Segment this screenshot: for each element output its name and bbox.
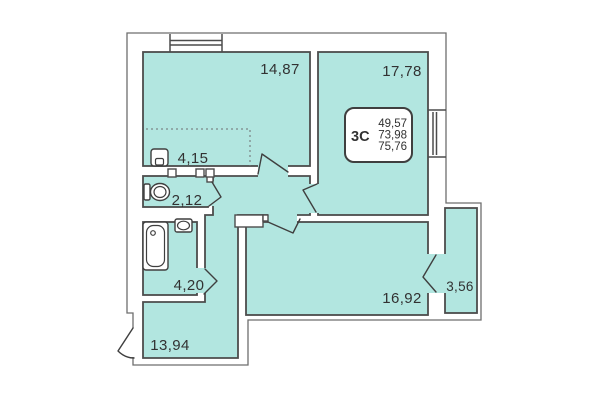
room-label-living-kitchen: 16,92	[382, 290, 422, 307]
kitchen-sink-icon	[151, 149, 168, 166]
unit-area-main: 73,98	[378, 130, 407, 142]
room-label-bedroom2: 17,78	[382, 63, 422, 80]
room-label-wc: 2,12	[172, 192, 203, 209]
floor-plan-svg: 14,87 17,78 4,15 2,12 4,20 13,94 16,92 3…	[0, 0, 600, 400]
floor-plan-canvas: 14,87 17,78 4,15 2,12 4,20 13,94 16,92 3…	[0, 0, 600, 400]
bathroom-sink-icon	[175, 219, 192, 232]
doorway-wc	[202, 181, 220, 206]
doorway-bedroom	[258, 162, 288, 180]
room-label-hallway: 13,94	[150, 337, 190, 354]
room-label-kitchen-niche: 4,15	[178, 150, 209, 167]
door-entrance	[118, 328, 134, 358]
room-label-balcony: 3,56	[446, 279, 473, 294]
unit-area-living: 49,57	[378, 118, 407, 130]
unit-type-label: 3С	[351, 129, 370, 145]
room-balcony	[445, 208, 477, 313]
vent-shaft-icon	[206, 169, 214, 177]
unit-info-box: 3С 49,57 73,98 75,76	[345, 108, 412, 162]
window-right-icon	[428, 110, 446, 157]
toilet-icon	[144, 184, 170, 201]
room-label-bathroom: 4,20	[174, 277, 205, 294]
window-top-icon	[170, 34, 222, 52]
vent-shaft-icon	[196, 169, 204, 177]
room-label-bedroom: 14,87	[260, 61, 300, 78]
wall-stub-hall	[235, 215, 263, 227]
doorway-balcony	[424, 254, 449, 293]
vent-shaft-icon	[168, 169, 176, 177]
unit-area-total: 75,76	[378, 141, 407, 153]
bathtub-icon	[143, 222, 168, 270]
wall-stub-hall-notch	[263, 215, 268, 221]
